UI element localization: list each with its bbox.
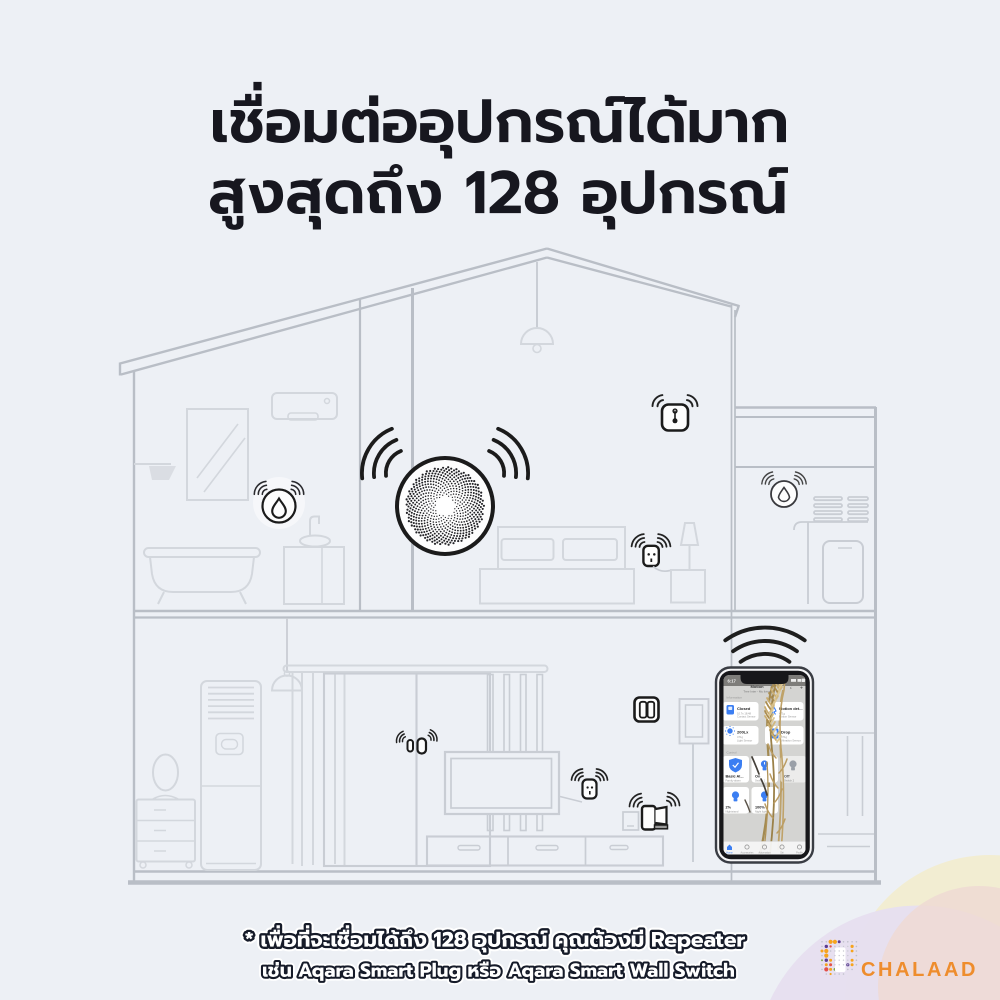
svg-text:Tree Inter - My living: Tree Inter - My living <box>743 690 771 694</box>
svg-text:Information: Information <box>727 696 743 700</box>
svg-text:On: On <box>755 775 761 779</box>
svg-text:Basic Al...: Basic Al... <box>726 775 744 779</box>
svg-text:Accessories: Accessories <box>741 852 755 855</box>
svg-text:Night light: Night light <box>755 810 767 814</box>
svg-text:10.7s 18:48: 10.7s 18:48 <box>737 711 752 715</box>
svg-text:Nightstand: Nightstand <box>726 810 739 814</box>
svg-text:2%: 2% <box>726 806 732 810</box>
svg-text:6:17: 6:17 <box>728 679 737 684</box>
svg-text:Off: Off <box>784 775 790 779</box>
svg-text:Motion Sensor: Motion Sensor <box>779 715 796 719</box>
svg-text:Siri: Siri <box>780 852 784 855</box>
svg-text:Drop: Drop <box>781 730 791 735</box>
svg-text:Light Sensor: Light Sensor <box>737 738 752 742</box>
svg-text:Family alarm: Family alarm <box>726 779 742 783</box>
svg-text:100%: 100% <box>755 806 765 810</box>
svg-text:200Lx: 200Lx <box>737 730 749 735</box>
svg-text:471g: 471g <box>737 735 743 739</box>
svg-text:Motion det...: Motion det... <box>779 706 803 711</box>
svg-text:Motion: Motion <box>750 684 764 689</box>
svg-text:Contact Sensor: Contact Sensor <box>737 715 756 719</box>
svg-text:CHALAAD: CHALAAD <box>861 959 978 981</box>
svg-text:Automation: Automation <box>758 852 771 855</box>
svg-text:+: + <box>800 686 803 692</box>
svg-text:471g: 471g <box>781 735 787 739</box>
svg-text:Switch 2: Switch 2 <box>784 779 795 783</box>
svg-text:Closed: Closed <box>737 706 751 711</box>
svg-text:Control: Control <box>727 751 737 755</box>
svg-text:Vibration Sensor: Vibration Sensor <box>781 738 801 742</box>
